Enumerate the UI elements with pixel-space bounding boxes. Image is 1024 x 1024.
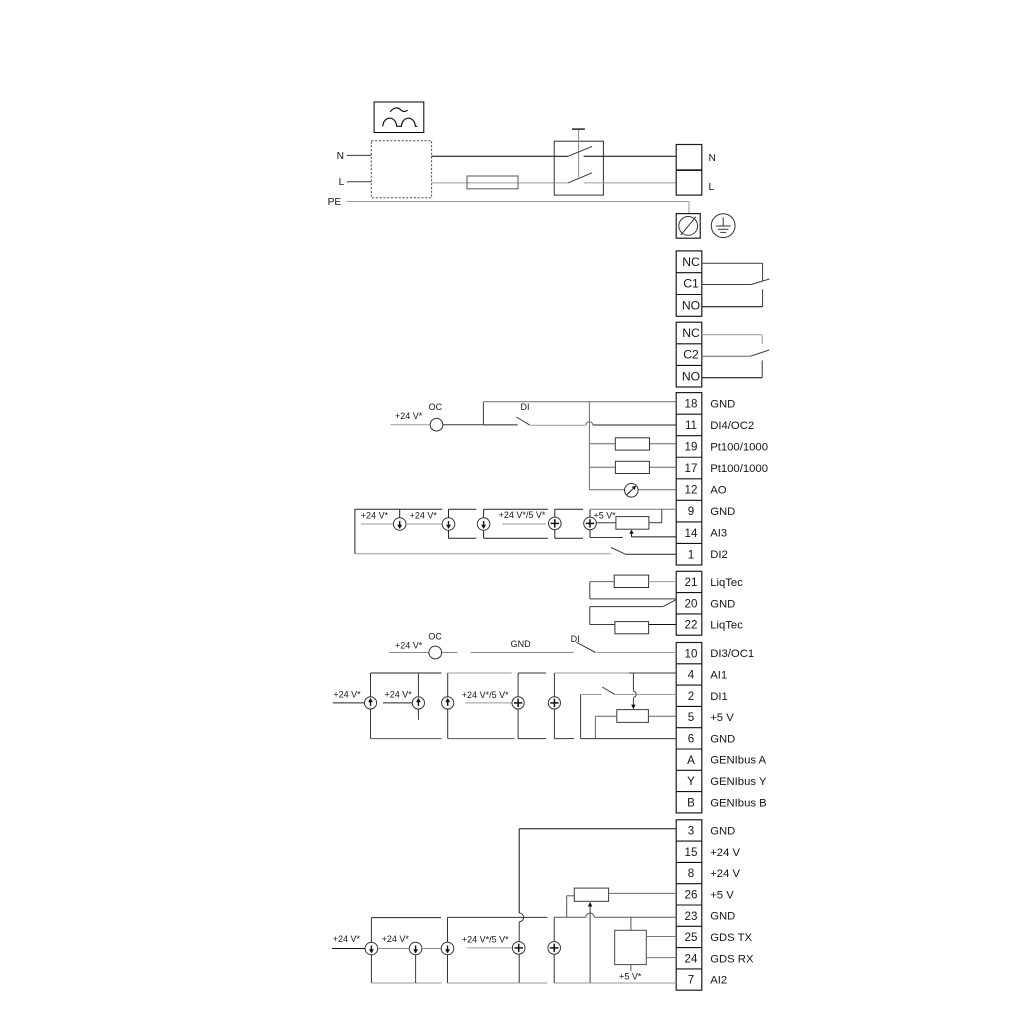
svg-text:L: L: [709, 182, 715, 193]
svg-text:2: 2: [688, 690, 694, 703]
svg-text:17: 17: [685, 462, 698, 475]
svg-text:NC: NC: [682, 326, 700, 340]
svg-text:GND: GND: [710, 398, 735, 410]
svg-text:NO: NO: [682, 369, 700, 383]
svg-text:7: 7: [688, 974, 694, 987]
svg-text:+24 V*: +24 V*: [333, 934, 361, 944]
svg-text:DI4/OC2: DI4/OC2: [710, 420, 754, 432]
svg-text:+5 V: +5 V: [710, 712, 734, 724]
svg-text:GND: GND: [710, 825, 735, 837]
svg-text:N: N: [337, 151, 344, 162]
svg-text:AI1: AI1: [710, 669, 727, 681]
svg-text:GND: GND: [511, 639, 531, 649]
svg-text:8: 8: [688, 867, 694, 880]
svg-text:GENIbus Y: GENIbus Y: [710, 776, 767, 788]
svg-text:24: 24: [685, 952, 698, 965]
svg-text:NO: NO: [682, 299, 700, 313]
svg-text:11: 11: [685, 419, 697, 432]
svg-text:1: 1: [688, 548, 694, 561]
svg-text:+24 V*: +24 V*: [361, 511, 389, 521]
svg-text:+24 V*: +24 V*: [382, 934, 410, 944]
svg-text:DI3/OC1: DI3/OC1: [710, 648, 754, 660]
svg-text:PE: PE: [328, 197, 342, 208]
svg-text:3: 3: [688, 825, 694, 838]
svg-text:+24 V*/5 V*: +24 V*/5 V*: [499, 510, 546, 520]
svg-text:GDS TX: GDS TX: [710, 932, 752, 944]
svg-text:OC: OC: [428, 631, 442, 641]
svg-text:26: 26: [685, 888, 698, 901]
svg-text:GND: GND: [710, 911, 735, 923]
svg-text:OC: OC: [429, 402, 443, 412]
svg-text:DI2: DI2: [710, 549, 728, 561]
svg-text:B: B: [687, 796, 695, 809]
svg-text:18: 18: [685, 397, 698, 410]
svg-text:LiqTec: LiqTec: [710, 577, 743, 589]
svg-text:5: 5: [688, 711, 694, 724]
svg-text:+24 V*: +24 V*: [395, 640, 423, 650]
svg-text:25: 25: [685, 931, 698, 944]
svg-text:12: 12: [685, 484, 698, 497]
svg-text:21: 21: [685, 576, 698, 589]
svg-text:AO: AO: [710, 485, 727, 497]
svg-text:+24 V*: +24 V*: [385, 689, 413, 699]
svg-text:+5 V*: +5 V*: [619, 971, 642, 981]
svg-text:N: N: [709, 153, 716, 164]
svg-text:NC: NC: [682, 255, 700, 269]
svg-text:9: 9: [688, 505, 694, 518]
svg-text:GND: GND: [710, 598, 735, 610]
svg-text:+24 V*: +24 V*: [410, 511, 438, 521]
svg-text:GDS RX: GDS RX: [710, 953, 754, 965]
svg-text:GND: GND: [710, 506, 735, 518]
svg-text:GND: GND: [710, 733, 735, 745]
svg-text:6: 6: [688, 732, 694, 745]
svg-text:DI: DI: [521, 402, 530, 412]
svg-text:GENIbus B: GENIbus B: [710, 797, 767, 809]
svg-text:Pt100/1000: Pt100/1000: [710, 441, 768, 453]
svg-text:L: L: [339, 177, 345, 188]
svg-text:+5 V*: +5 V*: [594, 511, 617, 521]
svg-text:+24 V: +24 V: [710, 847, 740, 859]
svg-text:+24 V*/5 V*: +24 V*/5 V*: [462, 934, 509, 944]
svg-text:15: 15: [685, 846, 698, 859]
svg-text:LiqTec: LiqTec: [710, 620, 743, 632]
svg-text:19: 19: [685, 441, 698, 454]
svg-text:4: 4: [688, 669, 695, 682]
svg-text:+24 V*: +24 V*: [395, 411, 423, 421]
svg-text:+24 V*/5 V*: +24 V*/5 V*: [462, 690, 509, 700]
svg-text:23: 23: [685, 910, 698, 923]
svg-text:GENIbus A: GENIbus A: [710, 755, 766, 767]
svg-text:20: 20: [685, 597, 698, 610]
svg-text:Y: Y: [687, 775, 695, 788]
svg-text:22: 22: [685, 619, 698, 632]
svg-text:+5 V: +5 V: [710, 889, 734, 901]
svg-text:+24 V*: +24 V*: [333, 689, 361, 699]
svg-text:Pt100/1000: Pt100/1000: [710, 463, 768, 475]
svg-text:14: 14: [685, 527, 698, 540]
svg-text:DI1: DI1: [710, 691, 728, 703]
svg-text:AI2: AI2: [710, 975, 727, 987]
svg-text:+24 V: +24 V: [710, 868, 740, 880]
svg-text:C2: C2: [683, 348, 699, 362]
svg-text:A: A: [687, 754, 695, 767]
svg-text:AI3: AI3: [710, 528, 727, 540]
svg-text:C1: C1: [683, 277, 699, 291]
svg-text:10: 10: [685, 647, 698, 660]
svg-text:DI: DI: [571, 634, 580, 644]
